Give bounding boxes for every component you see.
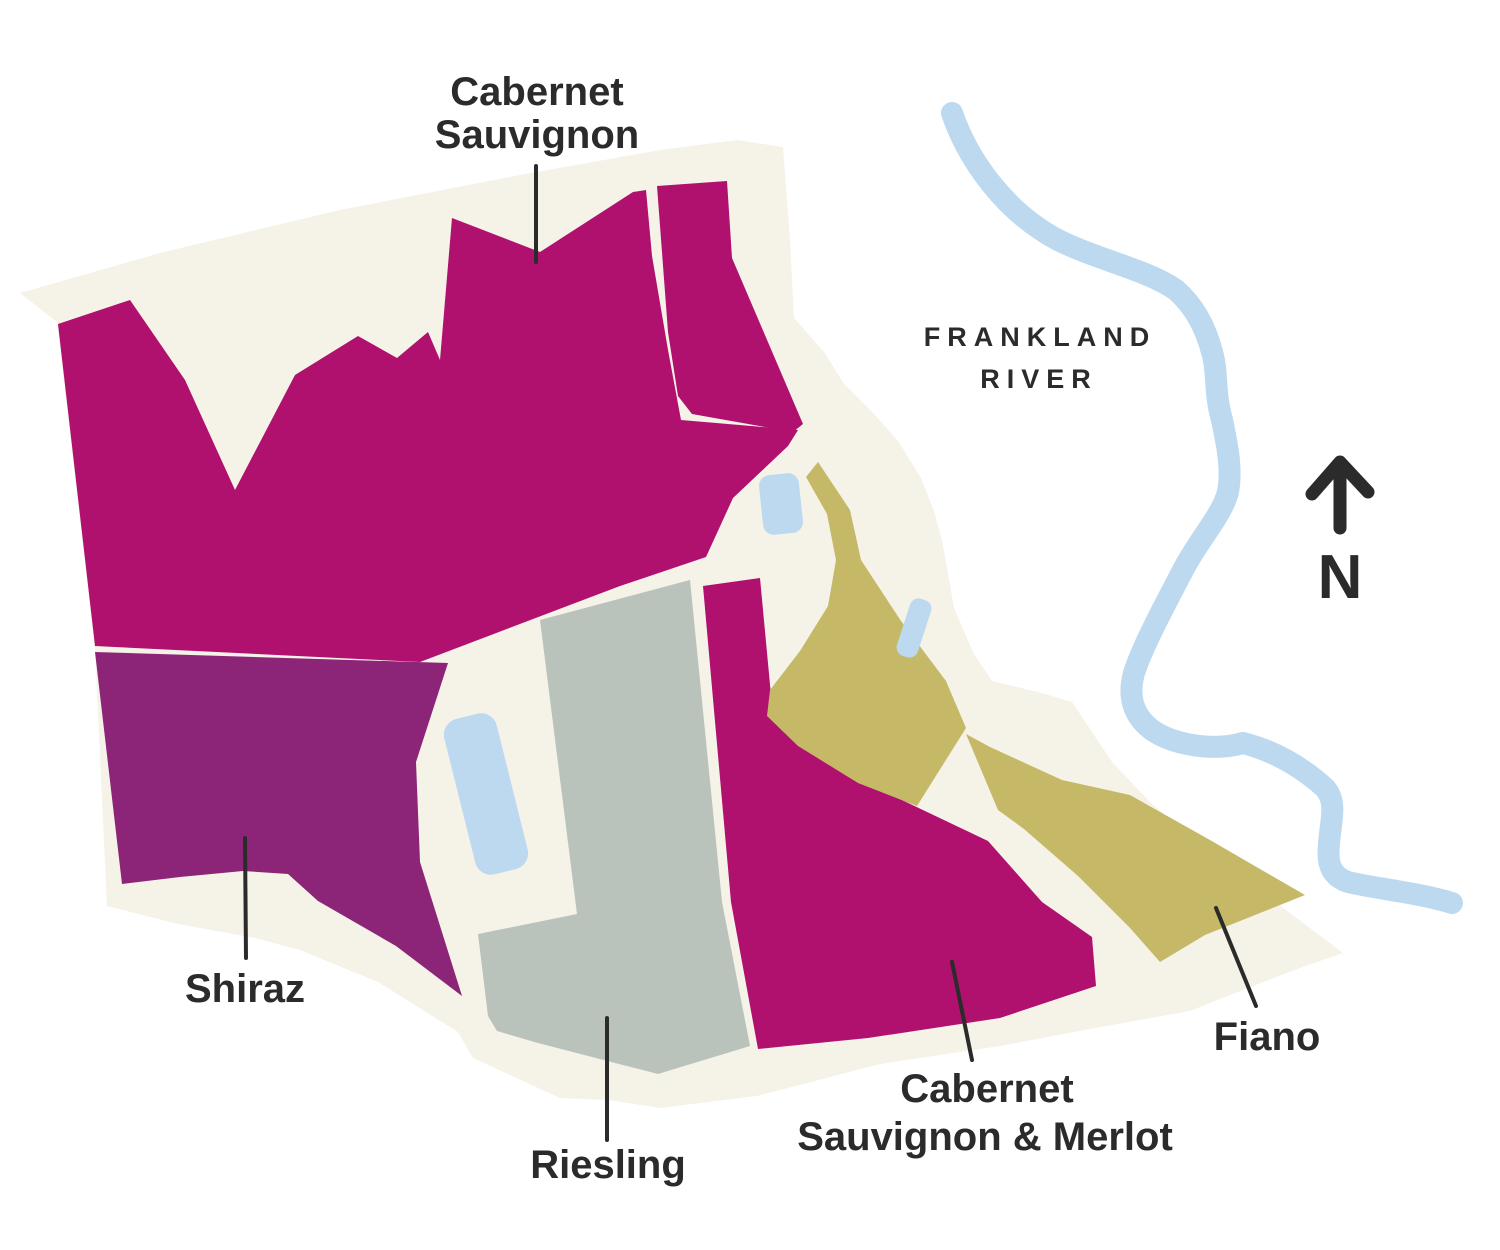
dam-mid-shape	[758, 472, 804, 536]
cabernet-sauvignon-label-line1: Cabernet	[450, 70, 623, 114]
riesling-label: Riesling	[530, 1143, 686, 1187]
river-label-line1: FRANKLAND	[924, 322, 1156, 352]
north-arrow-icon	[1312, 462, 1368, 528]
region-shiraz-shape	[95, 652, 462, 996]
vineyard-map: Cabernet Sauvignon Shiraz Riesling Caber…	[0, 0, 1500, 1250]
cabernet-sauvignon-merlot-label-line1: Cabernet	[900, 1067, 1073, 1111]
cabernet-sauvignon-merlot-label-line2: Sauvignon & Merlot	[797, 1115, 1173, 1159]
north-compass: N	[1312, 462, 1368, 612]
shiraz-label: Shiraz	[185, 967, 305, 1011]
fiano-label: Fiano	[1214, 1015, 1321, 1059]
river-label-line2: RIVER	[980, 364, 1098, 394]
vineyard-map-page: Cabernet Sauvignon Shiraz Riesling Caber…	[0, 0, 1500, 1250]
river-label: FRANKLAND RIVER	[924, 322, 1156, 394]
north-letter: N	[1318, 543, 1363, 612]
cabernet-sauvignon-label-line2: Sauvignon	[435, 113, 639, 157]
shiraz-leader-line	[245, 838, 246, 958]
